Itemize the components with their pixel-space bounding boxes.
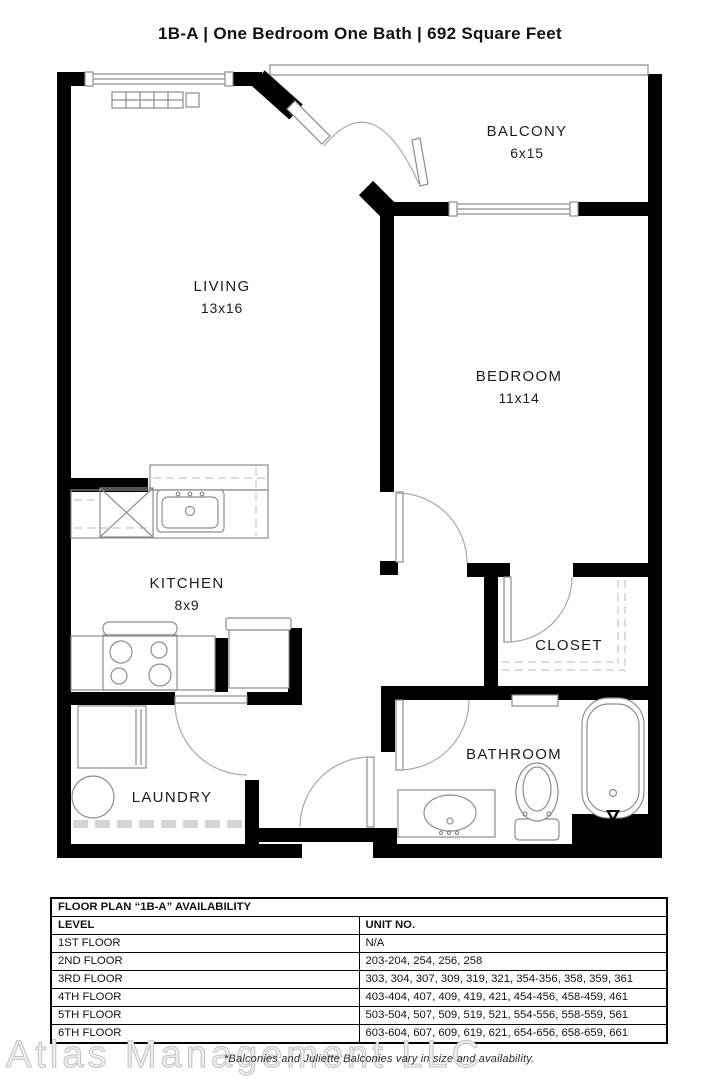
level-cell: 4TH FLOOR — [51, 989, 359, 1007]
washer — [78, 706, 146, 768]
unit-column-header: UNIT NO. — [359, 917, 667, 935]
availability-rows: 1ST FLOORN/A2ND FLOOR203-204, 254, 256, … — [51, 935, 667, 1044]
availability-table: FLOOR PLAN “1B-A” AVAILABILITY LEVEL UNI… — [50, 897, 668, 1044]
dishwasher — [100, 488, 153, 537]
availability-row: 3RD FLOOR303, 304, 307, 309, 319, 321, 3… — [51, 971, 667, 989]
availability-header-row: LEVEL UNIT NO. — [51, 917, 667, 935]
living-window — [85, 72, 233, 86]
kitchen-label: KITCHEN — [150, 575, 225, 592]
hall-door — [300, 757, 374, 827]
closet-door — [504, 577, 572, 642]
toilet — [515, 763, 559, 840]
bathroom-wall-niche — [512, 695, 558, 706]
level-cell: 2ND FLOOR — [51, 953, 359, 971]
level-cell: 1ST FLOOR — [51, 935, 359, 953]
bathroom-door — [396, 700, 469, 770]
availability-row: 2ND FLOOR203-204, 254, 256, 258 — [51, 953, 667, 971]
balcony-railing — [270, 65, 648, 75]
water-heater — [72, 776, 114, 818]
vanity-sink — [398, 790, 495, 837]
units-cell: 303, 304, 307, 309, 319, 321, 354-356, 3… — [359, 971, 667, 989]
level-cell: 3RD FLOOR — [51, 971, 359, 989]
availability-row: 5TH FLOOR503-504, 507, 509, 519, 521, 55… — [51, 1007, 667, 1025]
stove — [71, 622, 215, 690]
closet-label: CLOSET — [535, 637, 603, 654]
bedroom-door — [396, 492, 467, 563]
units-cell: 403-404, 407, 409, 419, 421, 454-456, 45… — [359, 989, 667, 1007]
units-cell: 503-504, 507, 509, 519, 521, 554-556, 55… — [359, 1007, 667, 1025]
level-column-header: LEVEL — [51, 917, 359, 935]
floor-plan-page: 1B-A | One Bedroom One Bath | 692 Square… — [0, 0, 720, 1080]
refrigerator — [226, 618, 291, 688]
bathroom-label: BATHROOM — [466, 746, 562, 763]
living-dims: 13x16 — [201, 300, 243, 316]
living-label: LIVING — [194, 278, 251, 295]
baseboard-heater — [112, 92, 199, 108]
availability-title: FLOOR PLAN “1B-A” AVAILABILITY — [51, 898, 667, 917]
bedroom-dims: 11x14 — [498, 390, 539, 406]
balcony-dims: 6x15 — [510, 145, 544, 161]
bedroom-window — [449, 202, 578, 216]
laundry-door — [175, 696, 247, 775]
balcony-disclaimer: *Balconies and Juliette Balconies vary i… — [224, 1053, 534, 1065]
entry-door — [287, 101, 428, 186]
walls — [57, 72, 662, 858]
units-cell: 203-204, 254, 256, 258 — [359, 953, 667, 971]
balcony-label: BALCONY — [487, 123, 568, 140]
kitchen-sink — [157, 490, 224, 532]
availability-row: 1ST FLOORN/A — [51, 935, 667, 953]
bathtub — [582, 698, 644, 823]
availability-title-row: FLOOR PLAN “1B-A” AVAILABILITY — [51, 898, 667, 917]
floor-plan-drawing: BALCONY 6x15 LIVING 13x16 BEDROOM 11x14 … — [0, 0, 720, 880]
laundry-label: LAUNDRY — [132, 789, 213, 806]
units-cell: N/A — [359, 935, 667, 953]
kitchen-dims: 8x9 — [175, 597, 200, 613]
level-cell: 5TH FLOOR — [51, 1007, 359, 1025]
availability-row: 4TH FLOOR403-404, 407, 409, 419, 421, 45… — [51, 989, 667, 1007]
closet-shelf-dashes — [502, 580, 625, 672]
bedroom-label: BEDROOM — [476, 368, 563, 385]
